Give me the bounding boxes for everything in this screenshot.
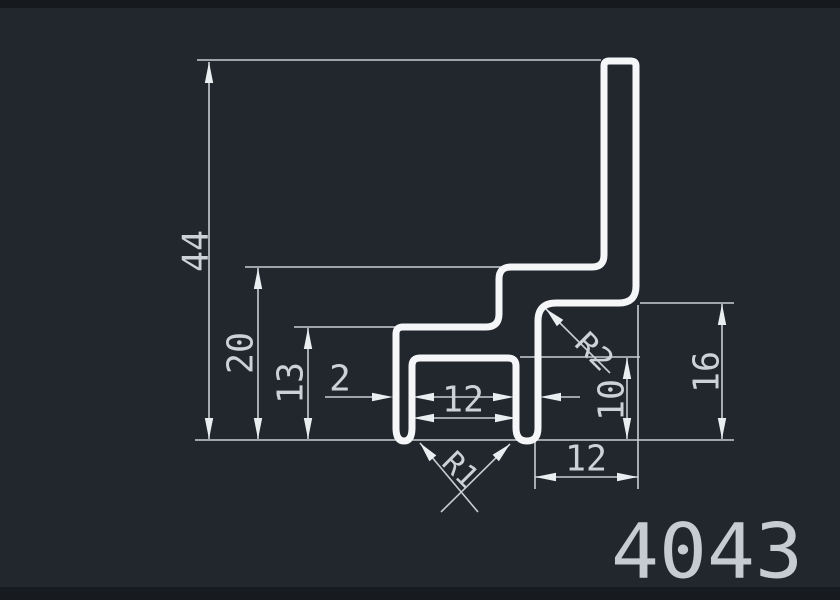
dim-right-flange-width-label: 12 — [565, 439, 607, 480]
dim-lower-step-height-label: 13 — [271, 362, 312, 404]
top-edge-band — [0, 0, 840, 8]
dim-channel-depth-label: 10 — [592, 379, 633, 421]
dim-wall-thickness-label: 2 — [329, 359, 351, 400]
dim-channel-inner-width-label: 12 — [442, 380, 484, 421]
dim-right-flange-height-label: 16 — [687, 351, 728, 393]
dim-overall-height-label: 44 — [176, 230, 217, 272]
profile-drawing: 44 20 13 2 12 10 16 12 R2 R1 4043 — [0, 0, 840, 600]
dim-upper-step-height-label: 20 — [221, 332, 262, 374]
part-number: 4043 — [611, 507, 803, 596]
cad-drawing-canvas: 44 20 13 2 12 10 16 12 R2 R1 4043 — [0, 0, 840, 600]
